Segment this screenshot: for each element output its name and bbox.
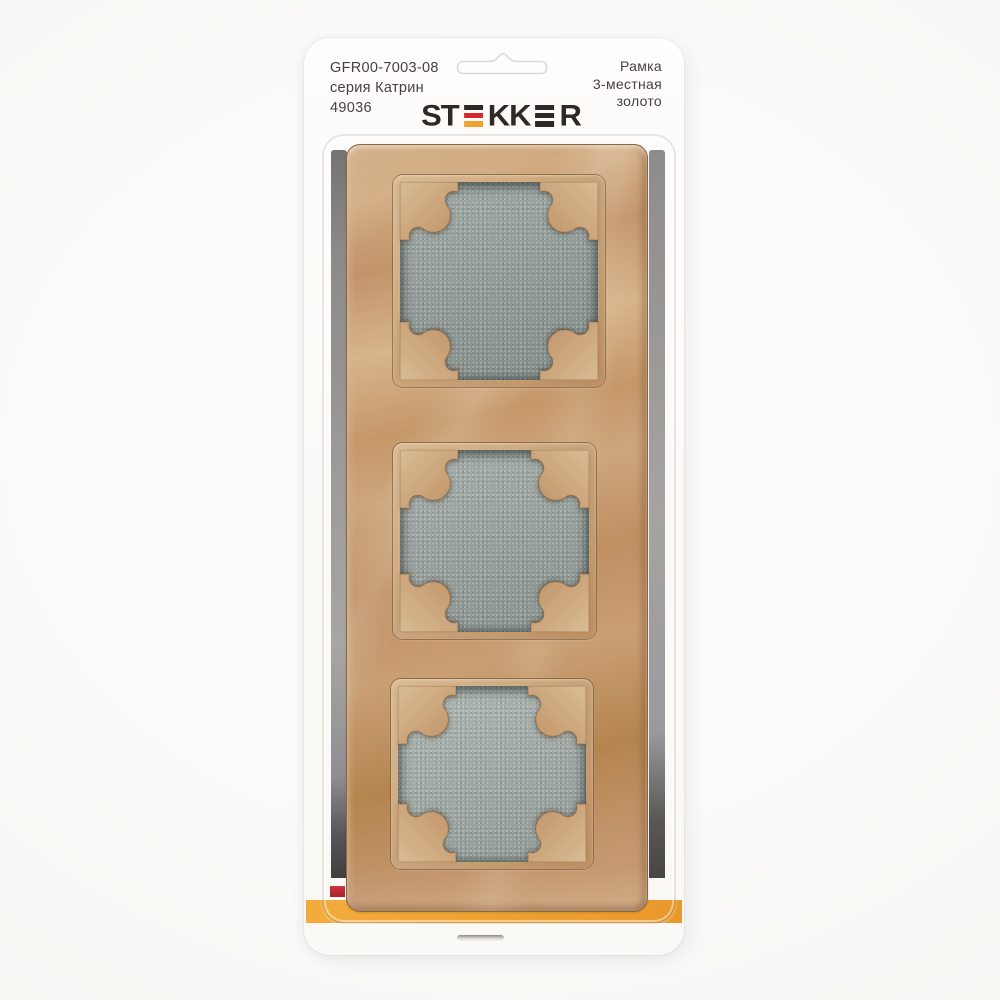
blister-tab-slot <box>457 935 504 941</box>
frame-window-2 <box>393 443 596 639</box>
logo-letter-e-colored-icon <box>464 105 483 127</box>
corner-tab-bottom-right <box>528 804 586 862</box>
corner-tab-bottom-left <box>400 574 458 632</box>
euro-hang-slot <box>456 53 548 77</box>
logo-letters-st: ST <box>421 101 459 131</box>
corner-tab-top-left <box>400 182 458 240</box>
frame-window-3 <box>391 679 593 869</box>
corner-tab-top-right <box>528 686 586 744</box>
product-type: Рамка <box>593 58 662 76</box>
logo-letter-e-dark-icon <box>536 105 555 127</box>
logo-letters-kk: KK <box>488 101 531 131</box>
corner-tab-top-right <box>531 450 589 508</box>
blister-card: GFR00-7003-08 серия Катрин 49036 Рамка 3… <box>304 38 684 955</box>
corner-tab-bottom-left <box>398 804 456 862</box>
corner-tab-bottom-left <box>400 322 458 380</box>
corner-tab-top-left <box>398 686 456 744</box>
corner-tab-top-right <box>540 182 598 240</box>
frame-window-1 <box>393 175 605 387</box>
corner-tab-bottom-right <box>531 574 589 632</box>
corner-tab-top-left <box>400 450 458 508</box>
photo-background: GFR00-7003-08 серия Катрин 49036 Рамка 3… <box>0 0 1000 1000</box>
product-info-right: Рамка 3-местная золото <box>593 58 662 111</box>
product-finish: золото <box>593 93 662 111</box>
stekker-logo: ST KK R <box>421 100 581 131</box>
logo-letter-r: R <box>560 101 581 131</box>
gold-frame <box>346 144 648 912</box>
series-name: серия Катрин <box>330 78 439 98</box>
product-gang: 3-местная <box>593 76 662 94</box>
article-number: GFR00-7003-08 <box>330 58 439 78</box>
corner-tab-bottom-right <box>540 322 598 380</box>
